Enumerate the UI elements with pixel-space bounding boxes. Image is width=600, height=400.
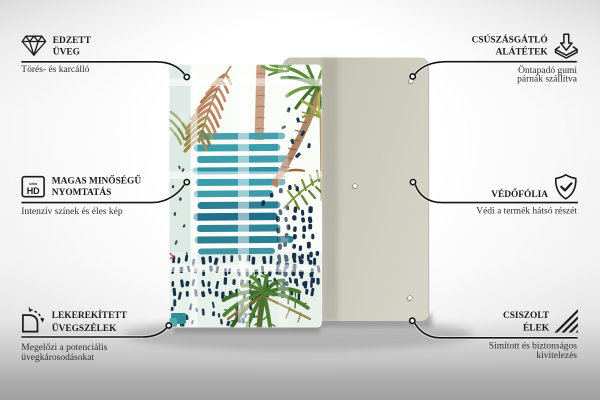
svg-text:Törés- és karcálló: Törés- és karcálló xyxy=(21,65,89,75)
svg-text:ÉLEK: ÉLEK xyxy=(523,321,550,333)
svg-text:CSISZOLT: CSISZOLT xyxy=(503,311,550,321)
svg-text:kivitelezés: kivitelezés xyxy=(536,351,577,361)
svg-text:HD: HD xyxy=(27,186,40,196)
svg-text:LEKEREKÍTETT: LEKEREKÍTETT xyxy=(52,309,128,321)
svg-text:üvegkárosodásokat: üvegkárosodásokat xyxy=(21,353,94,363)
svg-text:EDZETT: EDZETT xyxy=(53,36,92,46)
svg-text:NYOMTATÁS: NYOMTATÁS xyxy=(52,186,112,198)
svg-text:VÉDŐFÓLIA: VÉDŐFÓLIA xyxy=(491,188,548,200)
svg-text:ÜVEGSZÉLEK: ÜVEGSZÉLEK xyxy=(52,321,117,334)
svg-text:Intenzív színek és éles kép: Intenzív színek és éles kép xyxy=(21,207,123,217)
svg-text:CSÚSZÁSGÁTLÓ: CSÚSZÁSGÁTLÓ xyxy=(472,34,548,46)
svg-text:Megelőzi a potenciális: Megelőzi a potenciális xyxy=(21,343,107,353)
svg-text:párnák szállítva: párnák szállítva xyxy=(517,75,578,85)
svg-text:ÜVEG: ÜVEG xyxy=(53,44,81,57)
svg-text:Simított és biztonságos: Simított és biztonságos xyxy=(489,342,577,352)
svg-text:Védi a termék hátsó részét: Védi a termék hátsó részét xyxy=(476,207,577,217)
svg-text:ALÁTÉTEK: ALÁTÉTEK xyxy=(496,45,549,57)
svg-text:MAGAS MINŐSÉGŰ: MAGAS MINŐSÉGŰ xyxy=(52,175,142,187)
